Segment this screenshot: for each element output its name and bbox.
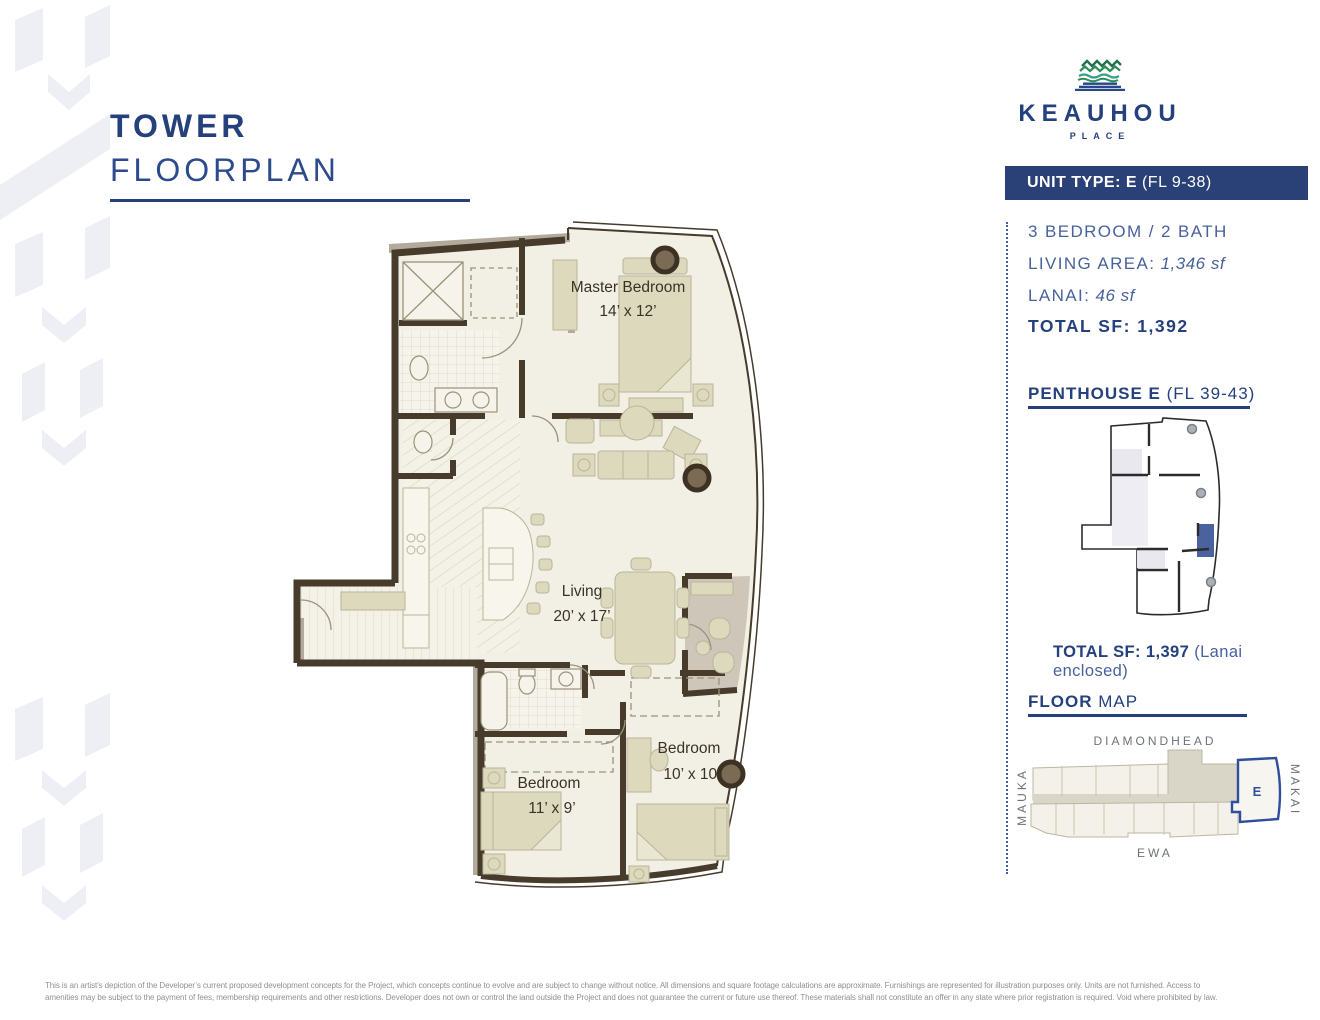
dotted-divider [1006, 222, 1008, 874]
disclaimer-line2: amenities may be subject to the payment … [45, 992, 1217, 1003]
floor-map-heading: FLOOR MAP [1028, 692, 1138, 712]
floor-map: DIAMONDHEAD MAUKA MAKAI EWA E [1010, 724, 1320, 879]
brand-subname: PLACE [1000, 131, 1200, 141]
lanai-label: LANAI: [1028, 286, 1090, 305]
unit-e-label: E [1253, 784, 1262, 799]
page-title-tower: TOWER [110, 108, 249, 145]
penthouse-total-sf: TOTAL SF: 1,397 (Lanai enclosed) [1053, 643, 1320, 681]
living-area-value: 1,346 sf [1155, 254, 1225, 273]
direction-diamondhead: DIAMONDHEAD [1093, 734, 1216, 748]
direction-mauka: MAUKA [1015, 768, 1029, 826]
brand-logo: KEAUHOU PLACE [1000, 58, 1200, 141]
penthouse-title: PENTHOUSE E [1028, 384, 1161, 403]
floor-map-title-rest: MAP [1093, 692, 1139, 711]
building-footprint: E [1031, 750, 1280, 837]
disclaimer-line1: This is an artist’s depiction of the Dev… [45, 980, 1200, 991]
bedroom1-dims: 11’ x 9’ [528, 800, 575, 817]
title-underline [110, 199, 470, 202]
penthouse-floors: (FL 39-43) [1161, 384, 1255, 403]
unit-type-label: UNIT TYPE: E [1027, 174, 1137, 191]
unit-type-banner: UNIT TYPE: E (FL 9-38) [1005, 166, 1308, 200]
spec-bed-bath: 3 BEDROOM / 2 BATH [1028, 222, 1228, 242]
penthouse-mini-floorplan [1078, 416, 1230, 640]
bedroom1-label: Bedroom [518, 775, 581, 792]
brand-name: KEAUHOU [1000, 100, 1200, 128]
floor-map-underline [1028, 714, 1247, 717]
floor-map-title: FLOOR [1028, 692, 1093, 711]
bedroom2-dims: 10’ x 10’ [663, 766, 720, 783]
direction-ewa: EWA [1137, 846, 1173, 860]
mountain-logo-icon [1075, 58, 1125, 91]
living-room-dims: 20’ x 17’ [553, 608, 610, 625]
penthouse-heading: PENTHOUSE E (FL 39-43) [1028, 384, 1255, 404]
lanai-value: 46 sf [1090, 286, 1135, 305]
spec-total-sf: TOTAL SF: 1,392 [1028, 316, 1189, 337]
main-floorplan: Master Bedroom 14’ x 12’ Living 20’ x 17… [285, 220, 785, 922]
unit-type-floors: (FL 9-38) [1137, 174, 1212, 191]
living-area-label: LIVING AREA: [1028, 254, 1155, 273]
master-bedroom-dims: 14’ x 12’ [599, 303, 656, 320]
spec-lanai: LANAI: 46 sf [1028, 286, 1135, 306]
page-title-floorplan: FLOORPLAN [110, 152, 340, 189]
spec-living-area: LIVING AREA: 1,346 sf [1028, 254, 1225, 274]
brochure-page: TOWER FLOORPLAN KEAUHOU PLACE UNIT TYPE:… [0, 0, 1320, 1020]
direction-makai: MAKAI [1288, 764, 1302, 816]
master-bedroom-label: Master Bedroom [571, 279, 686, 296]
bedroom2-label: Bedroom [658, 740, 721, 757]
penthouse-total-value: TOTAL SF: 1,397 [1053, 643, 1189, 661]
living-room-label: Living [562, 583, 603, 600]
penthouse-underline [1028, 406, 1250, 409]
